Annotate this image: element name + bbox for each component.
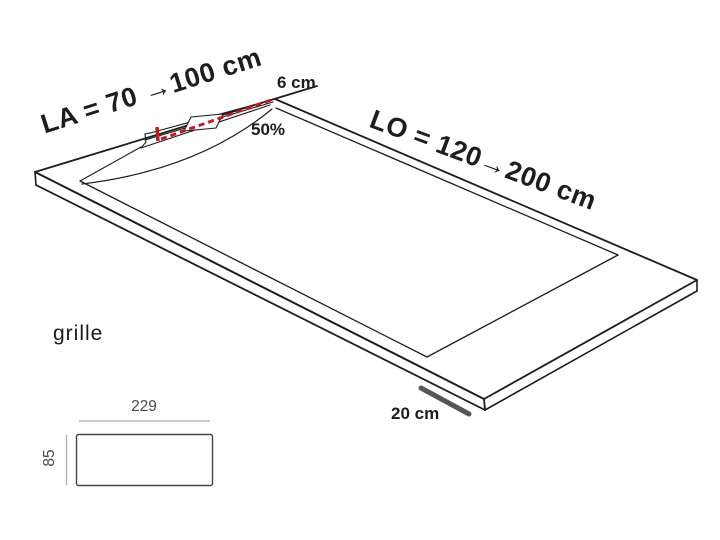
tray-base-left-edge <box>36 185 485 410</box>
shower-tray-diagram: LA = 70 →100 cm LO = 120→200 cm 6 cm 50%… <box>0 0 720 540</box>
tray-bottom-right-edge <box>484 280 697 399</box>
tray-left-corner-vertical <box>35 172 36 185</box>
grille-width-value: 229 <box>104 398 184 416</box>
floor-bottom-right-edge <box>427 255 618 357</box>
scale-label: 20 cm <box>391 404 439 424</box>
tray-bottom-left-edge <box>35 172 484 399</box>
grille-caption: grille <box>53 322 103 346</box>
grille-detail-drawing <box>67 421 213 486</box>
floor-bottom-left-edge <box>80 181 427 357</box>
tray-top-right-edge <box>275 99 697 280</box>
tray-front-corner-vertical <box>484 399 485 410</box>
drain-width-label: 6 cm <box>277 73 316 93</box>
slope-label: 50% <box>251 120 285 140</box>
floor-slope-curve <box>82 109 272 184</box>
tray-line-art <box>0 0 720 540</box>
grille-height-value: 85 <box>41 443 59 473</box>
drain-red-tick <box>157 127 158 141</box>
grille-rectangle <box>77 435 213 486</box>
